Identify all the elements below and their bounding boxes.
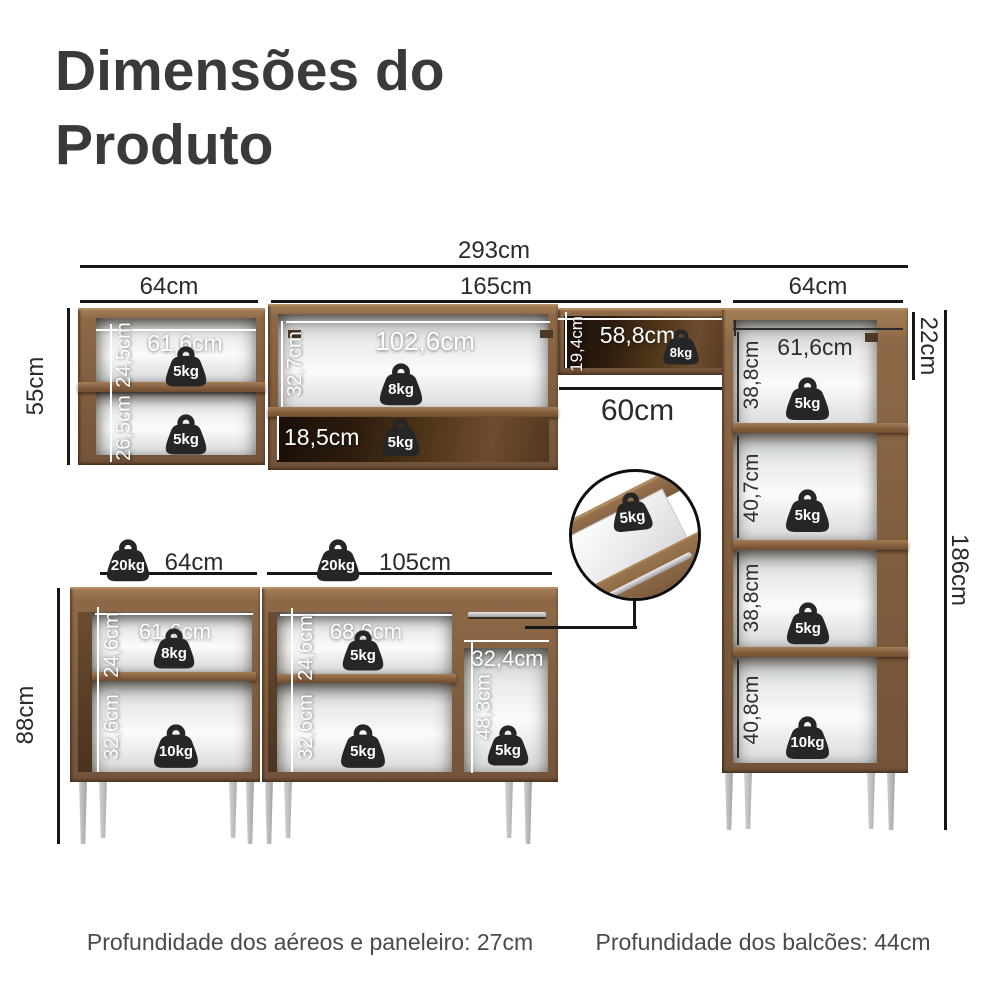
gap-width-line <box>559 387 722 390</box>
weight-icon: 5kg <box>782 489 833 535</box>
weight-label: 5kg <box>484 742 532 759</box>
weight-icon: 8kg <box>376 363 426 408</box>
pantry-comp4-line <box>737 660 739 758</box>
base-middle-niche-width-line <box>464 640 549 642</box>
pantry-comp4-height-label: 40,8cm <box>740 671 764 749</box>
upper-left-height-label: 55cm <box>23 351 49 421</box>
pantry-comp3-line <box>737 552 739 645</box>
weight-label: 10kg <box>150 743 202 760</box>
weight-label: 5kg <box>378 434 423 451</box>
depth-note-base: Profundidade dos balcões: 44cm <box>585 929 941 956</box>
base-left-side-shadow <box>78 612 92 772</box>
weight-icon: 5kg <box>339 630 387 674</box>
weight-label: 5kg <box>337 743 389 760</box>
weight-icon: 5kg <box>162 346 210 390</box>
weight-label: 8kg <box>376 381 426 398</box>
upper-middle-shelf <box>268 407 558 417</box>
weight-icon: 5kg <box>484 725 532 769</box>
weight-icon: 5kg <box>378 418 423 459</box>
base-middle-width-line <box>267 572 552 575</box>
page-title-line2: Produto <box>55 108 445 182</box>
pantry-leg <box>722 773 736 830</box>
pantry-comp2-height-label: 40,7cm <box>740 449 764 527</box>
base-left-comp2-height-label: 32,6cm <box>100 689 124 765</box>
weight-icon: 5kg <box>782 377 833 423</box>
upper-middle-innerwidth-line <box>286 321 550 323</box>
base-left-leg <box>243 782 257 844</box>
callout-pointer-line <box>633 599 636 629</box>
base-middle-leg <box>281 782 295 838</box>
weight-label: 20kg <box>103 557 153 574</box>
base-left-comp1-height-label: 24,6cm <box>100 607 124 683</box>
base-middle-comp-line <box>291 608 293 772</box>
page-title: Dimensões do Produto <box>55 34 445 182</box>
weight-label: 20kg <box>313 557 363 574</box>
pantry-leg <box>864 773 878 829</box>
left-width-label: 64cm <box>80 273 258 301</box>
weight-label: 10kg <box>782 734 833 751</box>
upper-middle-comp2-height-line <box>277 416 279 460</box>
pantry-comp1-line <box>737 332 739 422</box>
weight-icon: 10kg <box>150 724 202 771</box>
upper-left-comp1-height-label: 24,5cm <box>112 317 136 393</box>
weight-icon: 5kg <box>607 490 657 536</box>
base-middle-leg <box>502 782 516 838</box>
pantry-shelf3 <box>733 647 908 657</box>
pantry-total-height-label: 186cm <box>946 527 972 613</box>
right-width-line <box>733 300 903 303</box>
niche-height-label: 19,4cm <box>567 311 587 377</box>
base-left-leg <box>226 782 240 838</box>
base-left-leg <box>96 782 110 838</box>
depth-note-upper: Profundidade dos aéreos e paneleiro: 27c… <box>80 929 540 956</box>
weight-icon: 5kg <box>337 724 389 771</box>
base-middle-comp1-height-label: 24,6cm <box>294 610 318 686</box>
weight-label: 5kg <box>339 647 387 664</box>
middle-width-label: 165cm <box>271 273 721 301</box>
weight-icon: 8kg <box>660 329 702 367</box>
total-width-line <box>80 265 908 268</box>
drawer-handle-groove <box>468 612 546 619</box>
base-left-height-line <box>57 588 60 844</box>
weight-label: 5kg <box>782 507 833 524</box>
middle-width-line <box>271 300 721 303</box>
pantry-innerwidth-tick <box>734 320 736 336</box>
weight-icon: 8kg <box>150 628 198 672</box>
pantry-innerwidth-line <box>733 328 903 330</box>
pantry-comp2-line <box>737 436 739 538</box>
weight-icon: 5kg <box>783 602 833 647</box>
pantry-shelf1 <box>733 423 908 433</box>
weight-label: 5kg <box>162 431 210 448</box>
weight-label: 5kg <box>782 395 833 412</box>
base-middle-niche-width-label: 32,4cm <box>455 646 560 672</box>
gap-width-label: 60cm <box>575 394 700 428</box>
pantry-comp1-height-label: 38,8cm <box>740 336 764 414</box>
base-middle-comp2-height-label: 32,6cm <box>294 689 318 765</box>
upper-middle-innerwidth-label: 102,6cm <box>340 326 510 357</box>
weight-icon: 5kg <box>162 414 210 458</box>
weight-label: 5kg <box>162 363 210 380</box>
weight-label: 8kg <box>150 645 198 662</box>
weight-icon: 20kg <box>103 539 153 584</box>
upper-left-comp2-height-label: 26,5cm <box>112 390 136 466</box>
upper-left-height-line <box>67 308 70 465</box>
left-width-line <box>80 300 258 303</box>
hinge-mark <box>540 330 553 338</box>
pantry-comp3-height-label: 38,8cm <box>740 559 764 637</box>
pantry-leg <box>884 773 898 830</box>
pantry-innerwidth-label: 61,6cm <box>750 334 880 361</box>
base-left-comp-line <box>97 607 99 772</box>
callout-pointer-line <box>525 626 637 629</box>
weight-icon: 20kg <box>313 539 363 584</box>
weight-label: 8kg <box>660 345 702 360</box>
base-middle-leg <box>521 782 535 844</box>
pantry-leg <box>741 773 755 829</box>
pantry-top-height-label: 22cm <box>915 311 941 381</box>
pantry-shelf2 <box>733 540 908 550</box>
weight-icon: 10kg <box>782 716 833 762</box>
drawer-callout: 5kg <box>569 469 701 601</box>
total-width-label: 293cm <box>80 237 908 265</box>
product-dimensions-diagram: Dimensões do Produto 293cm 64cm 165cm 64… <box>0 0 1000 1000</box>
upper-middle-comp2-height-label: 18,5cm <box>284 424 384 451</box>
base-left-height-label: 88cm <box>13 680 39 750</box>
upper-middle-comp1-height-label: 32,7cm <box>283 326 307 402</box>
base-middle-leg <box>262 782 276 844</box>
weight-label: 5kg <box>783 620 833 637</box>
page-title-line1: Dimensões do <box>55 34 445 108</box>
base-left-leg <box>76 782 90 844</box>
right-width-label: 64cm <box>733 273 903 301</box>
